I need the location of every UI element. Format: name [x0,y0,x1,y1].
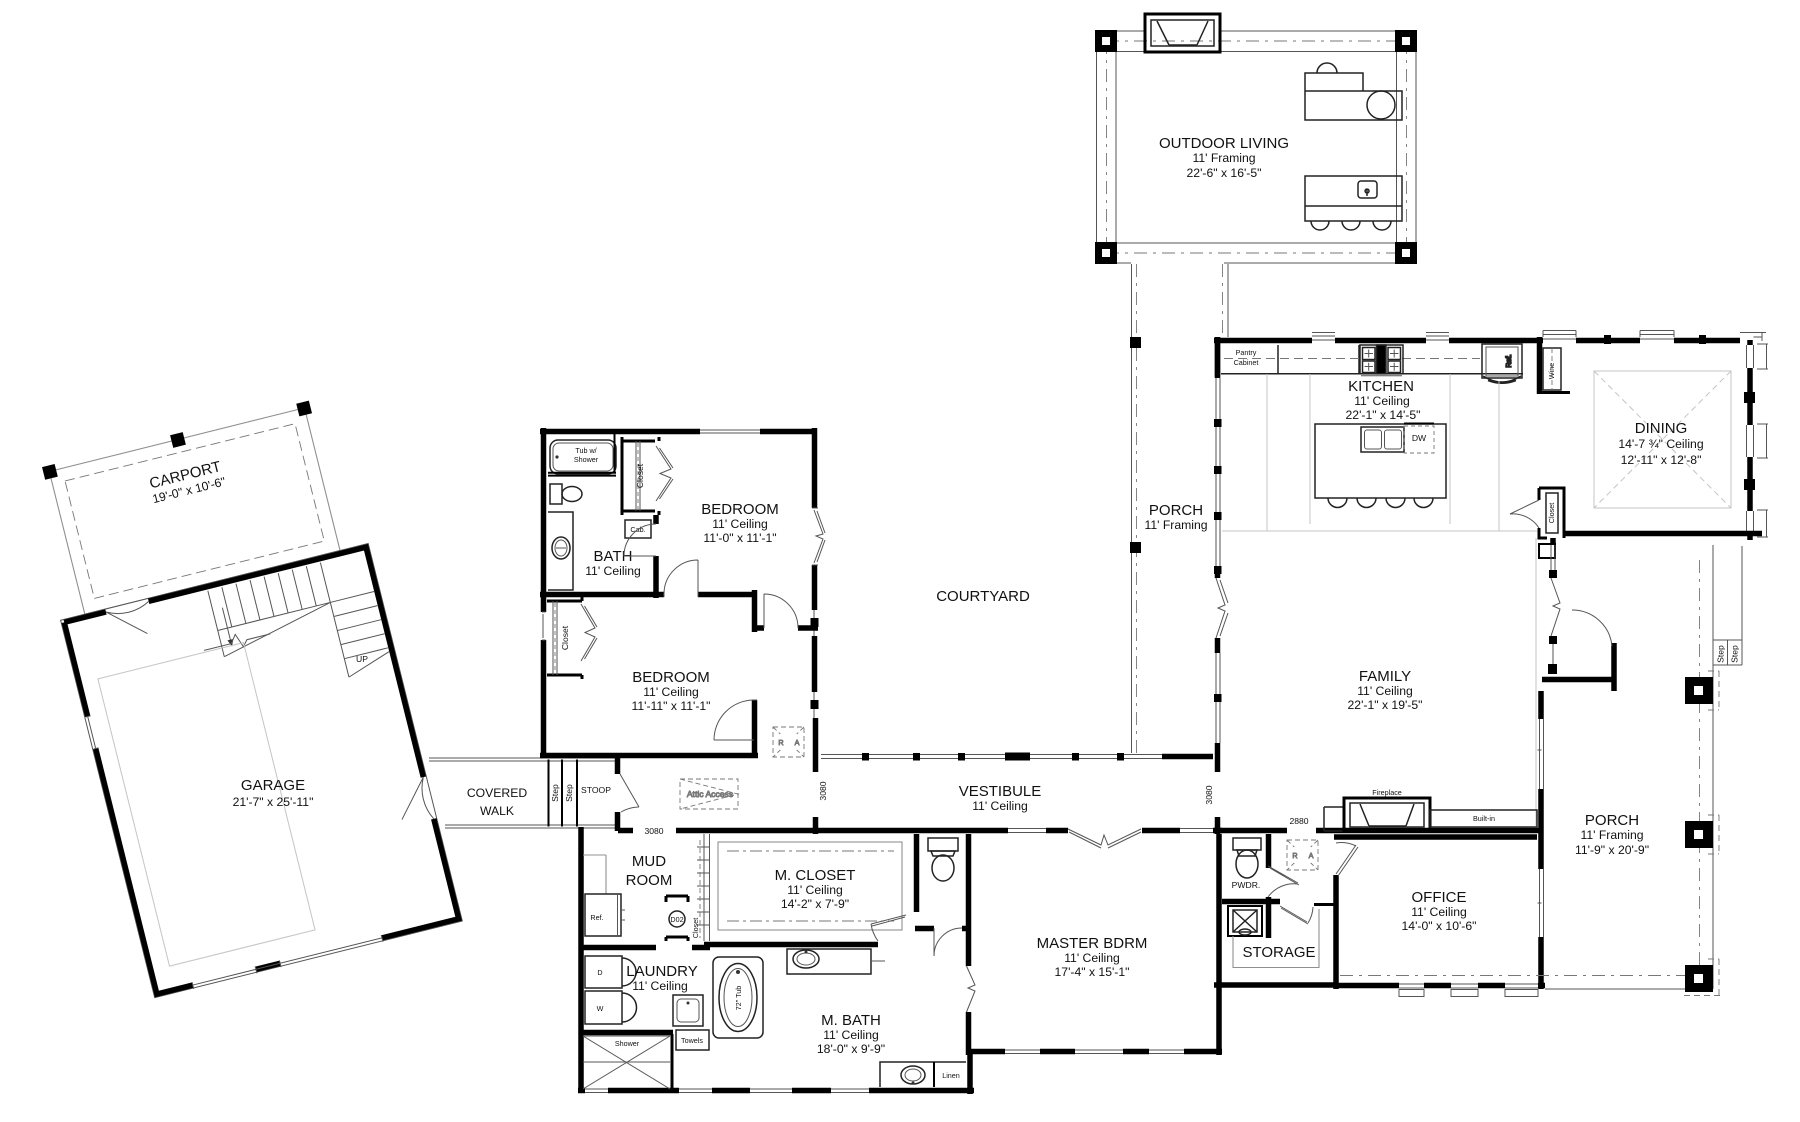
svg-text:Attic Access: Attic Access [687,789,733,799]
svg-text:Step: Step [550,784,560,802]
svg-text:14'-0" x 10'-6": 14'-0" x 10'-6" [1402,919,1477,933]
svg-text:11' Ceiling: 11' Ceiling [1064,951,1120,965]
svg-text:Linen: Linen [942,1071,960,1080]
svg-text:COURTYARD: COURTYARD [936,588,1030,605]
svg-text:11' Ceiling: 11' Ceiling [643,685,699,699]
svg-text:22'-6" x 16'-5": 22'-6" x 16'-5" [1187,166,1262,180]
svg-text:R: R [1292,851,1297,860]
svg-text:D: D [597,968,602,977]
svg-text:STORAGE: STORAGE [1242,944,1315,961]
svg-text:Step: Step [1730,645,1740,663]
svg-text:11' Framing: 11' Framing [1144,518,1207,532]
svg-text:A: A [1309,851,1314,860]
svg-text:11' Ceiling: 11' Ceiling [1411,905,1467,919]
svg-text:Wine: Wine [1547,363,1556,379]
svg-text:17'-4" x 15'-1": 17'-4" x 15'-1" [1055,965,1130,979]
svg-text:DINING: DINING [1635,420,1688,437]
svg-text:Step: Step [1716,645,1726,663]
svg-text:OUTDOOR LIVING: OUTDOOR LIVING [1159,135,1289,152]
svg-text:FAMILY: FAMILY [1359,668,1411,685]
svg-text:3080: 3080 [818,781,828,800]
svg-text:Towels: Towels [681,1036,703,1045]
svg-text:14'-7 ¾" Ceiling: 14'-7 ¾" Ceiling [1618,437,1703,451]
svg-text:11' Ceiling: 11' Ceiling [712,517,768,531]
svg-text:Step: Step [564,784,574,802]
svg-text:Built-in: Built-in [1473,814,1495,823]
svg-text:Ref.: Ref. [590,913,603,922]
svg-text:M. CLOSET: M. CLOSET [775,867,856,884]
svg-text:11' Ceiling: 11' Ceiling [1354,394,1410,408]
svg-text:Cabinet: Cabinet [1234,358,1259,367]
svg-text:Closet: Closet [691,918,700,938]
svg-text:Fireplace: Fireplace [1372,788,1402,797]
svg-text:11' Ceiling: 11' Ceiling [823,1028,879,1042]
svg-text:COVERED: COVERED [467,786,527,800]
svg-text:11' Framing: 11' Framing [1192,151,1255,165]
svg-text:D02: D02 [670,915,683,924]
svg-text:11' Ceiling: 11' Ceiling [972,799,1028,813]
svg-text:KITCHEN: KITCHEN [1348,378,1414,395]
svg-text:DW: DW [1412,433,1427,443]
svg-text:Closet: Closet [635,463,645,488]
svg-text:PORCH: PORCH [1149,502,1203,519]
svg-text:Tub w/: Tub w/ [575,446,596,455]
svg-text:OFFICE: OFFICE [1412,889,1467,906]
svg-text:3080: 3080 [644,826,663,836]
svg-text:PWDR.: PWDR. [1232,880,1261,890]
svg-text:R: R [778,738,783,747]
svg-text:W: W [597,1004,604,1013]
svg-text:3080: 3080 [1204,785,1214,804]
svg-text:11' Ceiling: 11' Ceiling [1357,684,1413,698]
svg-text:Closet: Closet [1547,503,1556,523]
svg-text:11'-0" x 11'-1": 11'-0" x 11'-1" [703,531,776,545]
svg-text:WALK: WALK [480,804,514,818]
svg-text:LAUNDRY: LAUNDRY [626,963,697,980]
svg-text:ROOM: ROOM [626,872,673,889]
svg-text:Shower: Shower [574,455,599,464]
svg-text:A: A [795,738,800,747]
svg-text:2880: 2880 [1289,816,1308,826]
svg-text:PORCH: PORCH [1585,812,1639,829]
svg-text:14'-2" x 7'-9": 14'-2" x 7'-9" [781,897,849,911]
svg-text:11' Ceiling: 11' Ceiling [787,883,843,897]
svg-text:22'-1" x 19'-5": 22'-1" x 19'-5" [1348,698,1423,712]
svg-text:Shower: Shower [615,1039,640,1048]
svg-text:11' Ceiling: 11' Ceiling [632,979,688,993]
svg-text:Closet: Closet [560,625,570,650]
svg-text:12'-11" x 12'-8": 12'-11" x 12'-8" [1621,453,1702,467]
svg-text:72" Tub: 72" Tub [734,986,743,1011]
svg-text:18'-0" x 9'-9": 18'-0" x 9'-9" [817,1042,885,1056]
svg-text:STOOP: STOOP [581,785,611,795]
svg-text:BEDROOM: BEDROOM [701,501,779,518]
svg-text:UP: UP [356,654,368,664]
svg-text:BEDROOM: BEDROOM [632,669,710,686]
svg-text:M. BATH: M. BATH [821,1012,881,1029]
svg-text:Ref.: Ref. [1504,354,1513,367]
svg-text:GARAGE: GARAGE [241,777,305,794]
svg-text:11'-9" x 20'-9": 11'-9" x 20'-9" [1575,843,1649,857]
svg-text:21'-7" x 25'-11": 21'-7" x 25'-11" [233,795,314,809]
svg-text:11' Framing: 11' Framing [1580,828,1643,842]
svg-text:Pantry: Pantry [1236,348,1257,357]
svg-text:MASTER BDRM: MASTER BDRM [1037,935,1148,952]
svg-text:MUD: MUD [632,853,666,870]
svg-text:11'-11" x 11'-1": 11'-11" x 11'-1" [631,699,710,713]
svg-text:22'-1" x 14'-5": 22'-1" x 14'-5" [1346,408,1421,422]
svg-text:VESTIBULE: VESTIBULE [959,783,1042,800]
svg-text:11' Ceiling: 11' Ceiling [585,564,641,578]
